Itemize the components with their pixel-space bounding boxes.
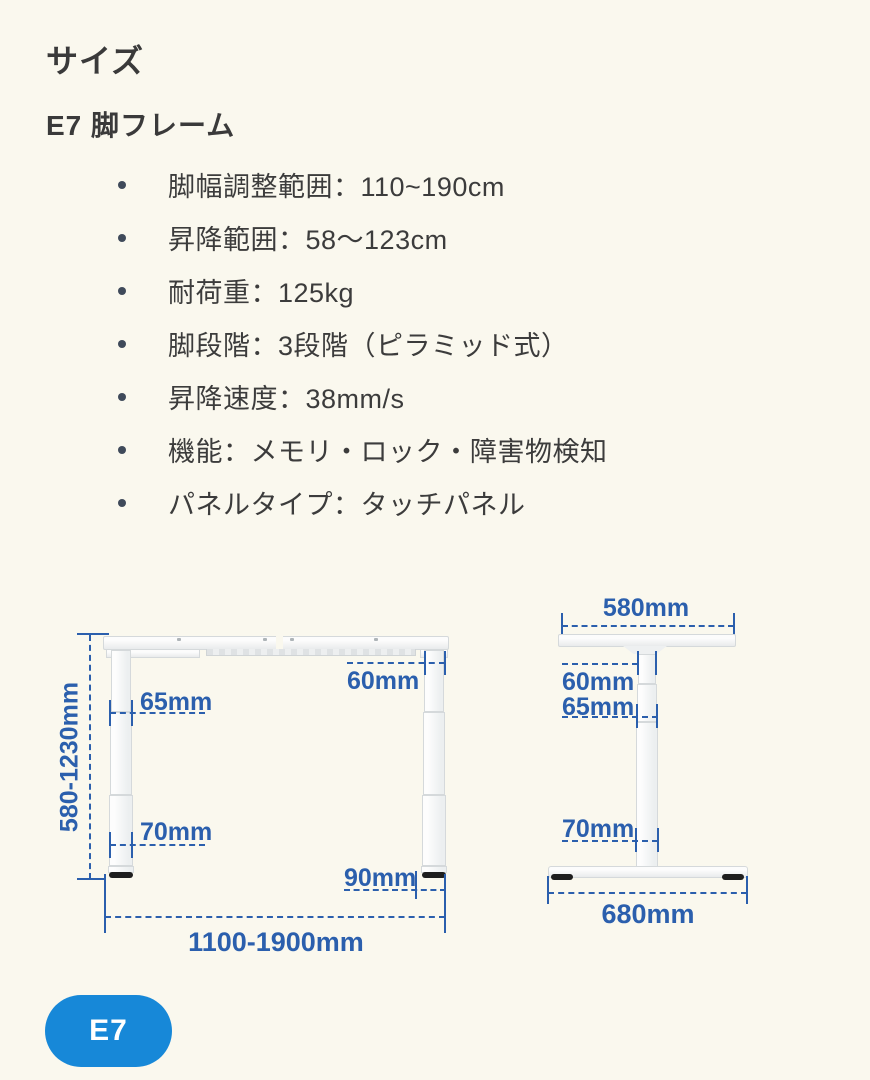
- spec-text: 耐荷重：125kg: [168, 271, 354, 310]
- beam-under-rail: [206, 649, 416, 656]
- left-leg-upper-segment: [111, 650, 131, 712]
- front-90mm-dim-line: [344, 889, 446, 891]
- spec-item-lift-range: 昇降範囲：58〜123cm: [118, 211, 758, 264]
- front-60mm-dim-line: [347, 662, 445, 664]
- side-65mm-tick: [636, 704, 638, 728]
- side-foot-pad-front: [551, 874, 573, 880]
- front-60mm-label: 60mm: [347, 667, 419, 696]
- spec-item-functions: 機能：メモリ・ロック・障害物検知: [118, 423, 758, 476]
- side-60mm-tick: [637, 651, 639, 675]
- front-60mm-tick: [424, 651, 426, 675]
- side-580mm-label: 580mm: [603, 594, 689, 623]
- front-70mm-label: 70mm: [140, 818, 212, 847]
- right-leg-lower-segment: [422, 795, 446, 866]
- side-column-upper-segment: [638, 654, 656, 684]
- left-foot-pad: [109, 872, 133, 878]
- front-height-dim-tick-top: [77, 633, 109, 635]
- spec-text: 機能：メモリ・ロック・障害物検知: [168, 430, 607, 469]
- front-width-dim-tick-left: [104, 874, 106, 933]
- bullet-dot: [118, 499, 126, 507]
- beam-hole-dot: [290, 638, 294, 641]
- side-70mm-dim-line: [562, 840, 658, 842]
- side-60mm-tick: [655, 651, 657, 675]
- side-bracket-neck: [623, 646, 667, 654]
- frame-subtitle: E7 脚フレーム: [46, 104, 235, 144]
- side-60mm-dim-line: [562, 663, 638, 665]
- side-680mm-tick-left: [547, 876, 549, 904]
- front-width-dim-tick-right: [444, 874, 446, 933]
- side-foot-pad-rear: [722, 874, 744, 880]
- side-65mm-dim-line: [562, 716, 658, 718]
- front-width-dim-line: [105, 916, 445, 918]
- front-60mm-tick: [444, 651, 446, 675]
- spec-text: 脚幅調整範囲：110~190cm: [168, 165, 505, 204]
- side-680mm-label: 680mm: [601, 899, 694, 930]
- side-base-plate: [548, 866, 748, 878]
- front-height-dim-line: [89, 635, 91, 879]
- side-column-lower-segment: [636, 722, 658, 868]
- front-width-range-label: 1100-1900mm: [188, 927, 364, 958]
- page-title: サイズ: [46, 36, 144, 82]
- beam-hole-dot: [177, 638, 181, 641]
- front-70mm-tick: [131, 832, 133, 858]
- right-foot-pad: [422, 872, 446, 878]
- spec-text: 昇降範囲：58〜123cm: [168, 218, 448, 257]
- e7-model-badge[interactable]: E7: [45, 995, 172, 1067]
- bullet-dot: [118, 446, 126, 454]
- beam-hole-dot: [263, 638, 267, 641]
- beam-hole-dot: [374, 638, 378, 641]
- spec-item-panel-type: パネルタイプ：タッチパネル: [118, 476, 758, 529]
- side-70mm-tick: [635, 828, 637, 852]
- spec-text: 脚段階：3段階（ピラミッド式）: [168, 324, 569, 363]
- front-70mm-tick: [109, 832, 111, 858]
- side-65mm-tick: [656, 704, 658, 728]
- front-90mm-tick: [415, 871, 417, 899]
- front-65mm-tick: [131, 700, 133, 726]
- spec-item-lift-speed: 昇降速度：38mm/s: [118, 370, 758, 423]
- left-leg-middle-segment: [110, 712, 132, 795]
- right-leg-upper-segment: [424, 650, 444, 712]
- front-65mm-dim-line: [110, 712, 205, 714]
- side-680mm-dim-line: [548, 892, 747, 894]
- bullet-dot: [118, 181, 126, 189]
- bullet-dot: [118, 234, 126, 242]
- bullet-dot: [118, 340, 126, 348]
- spec-text: パネルタイプ：タッチパネル: [168, 483, 526, 522]
- side-580mm-dim-line: [562, 625, 734, 627]
- front-height-range-label: 580-1230mm: [56, 682, 85, 832]
- side-70mm-tick: [657, 828, 659, 852]
- spec-text: 昇降速度：38mm/s: [168, 377, 405, 416]
- size-spec-section: サイズ E7 脚フレーム 脚幅調整範囲：110~190cm 昇降範囲：58〜12…: [0, 0, 870, 1080]
- spec-item-leg-width-range: 脚幅調整範囲：110~190cm: [118, 158, 758, 211]
- side-top-bracket: [558, 634, 736, 647]
- bullet-dot: [118, 287, 126, 295]
- front-70mm-dim-line: [110, 844, 205, 846]
- spec-list: 脚幅調整範囲：110~190cm 昇降範囲：58〜123cm 耐荷重：125kg…: [118, 158, 758, 529]
- front-65mm-tick: [109, 700, 111, 726]
- right-leg-middle-segment: [423, 712, 445, 795]
- side-680mm-tick-right: [746, 876, 748, 904]
- front-height-dim-tick-bottom: [77, 878, 105, 880]
- spec-item-load-capacity: 耐荷重：125kg: [118, 264, 758, 317]
- bullet-dot: [118, 393, 126, 401]
- spec-item-leg-stages: 脚段階：3段階（ピラミッド式）: [118, 317, 758, 370]
- left-leg-lower-segment: [109, 795, 133, 866]
